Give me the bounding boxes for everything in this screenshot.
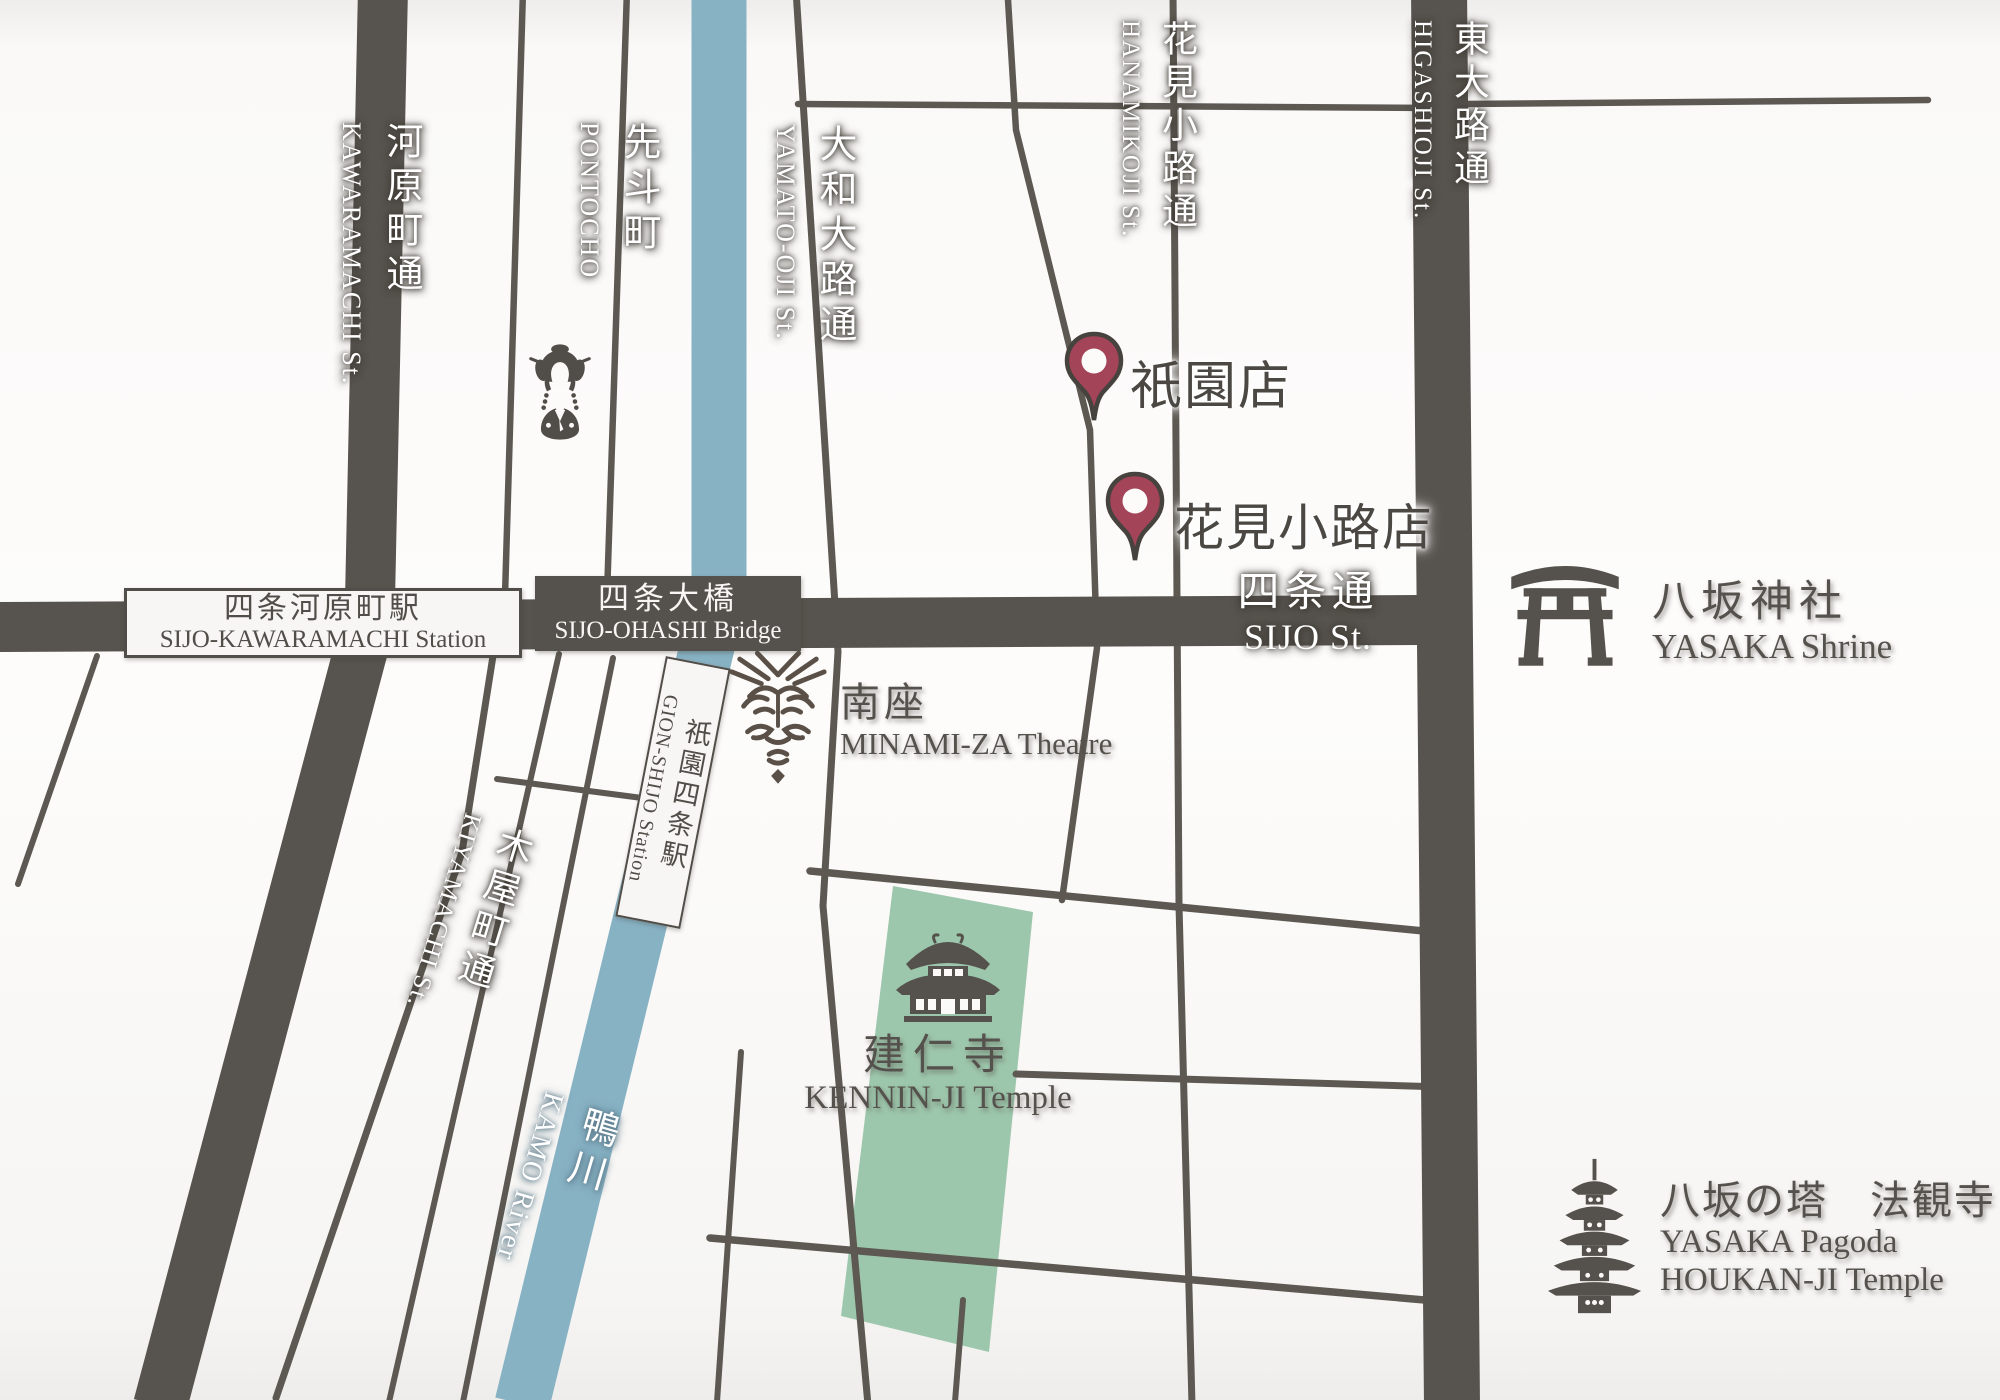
- station-box-sijo-kawaramachi: 四条河原町駅 SIJO-KAWARAMACHI Station: [124, 588, 522, 658]
- temple-icon: [888, 932, 1008, 1024]
- landmark-en: MINAMI-ZA Theatre: [840, 726, 1112, 762]
- map-pin-icon-gion[interactable]: [1061, 330, 1127, 426]
- pin-body[interactable]: [1067, 334, 1121, 420]
- street-label-jp: 東大路通: [1443, 20, 1495, 220]
- street-label-pontocho: 先斗町 PONTOCHO: [574, 122, 666, 279]
- street-label-hanamikoji: 花見小路通 HANAMIKOJI St.: [1116, 20, 1203, 238]
- pin-label-hanamikoji[interactable]: 花見小路店: [1174, 488, 1434, 560]
- street-label-sijo: 四条通 SIJO St.: [1192, 570, 1424, 657]
- road-gion-north-east: [1462, 100, 1928, 104]
- landmark-jp: 建仁寺: [792, 1032, 1084, 1080]
- landmark-en: YASAKA Shrine: [1652, 627, 1892, 667]
- street-label-jp: 大和大路通: [807, 124, 862, 349]
- landmark-label-kenninji: 建仁寺 KENNIN-JI Temple: [792, 1032, 1084, 1118]
- map-pin-icon-hanamikoji[interactable]: [1102, 470, 1168, 566]
- street-label-en: YAMATO-OJI St.: [770, 124, 800, 349]
- station-name-jp: 四条河原町駅: [224, 592, 422, 626]
- landmark-en: KENNIN-JI Temple: [792, 1080, 1084, 1118]
- landmark-label-yasaka-shrine: 八坂神社 YASAKA Shrine: [1652, 578, 1892, 668]
- kabuki-mask-icon: [724, 648, 832, 788]
- street-label-yamatooji: 大和大路通 YAMATO-OJI St.: [770, 124, 862, 349]
- street-label-jp: 四条通: [1192, 570, 1424, 617]
- street-label-jp: 先斗町: [611, 122, 666, 279]
- street-label-jp: 花見小路通: [1151, 20, 1203, 238]
- street-label-jp: 河原町通: [373, 122, 427, 385]
- landmark-jp: 南座: [840, 680, 1112, 726]
- pin-center: [1123, 489, 1148, 514]
- landmark-en2: HOUKAN-JI Temple: [1660, 1262, 1996, 1300]
- landmark-jp: 八坂神社: [1652, 578, 1892, 627]
- street-label-higashioji: 東大路通 HIGASHIOJI St.: [1408, 20, 1495, 220]
- bridge-box-sijo-ohashi: 四条大橋 SIJO-OHASHI Bridge: [535, 576, 801, 651]
- street-label-en: SIJO St.: [1192, 617, 1424, 657]
- kyoto-gion-area-map: 河原町通 KAWARAMACHI St. 先斗町 PONTOCHO 大和大路通 …: [0, 0, 2000, 1400]
- landmark-label-minamiza: 南座 MINAMI-ZA Theatre: [840, 680, 1112, 762]
- pin-body[interactable]: [1108, 474, 1162, 560]
- street-label-kawaramachi: 河原町通 KAWARAMACHI St.: [336, 122, 427, 385]
- pin-label-gion[interactable]: 祇園店: [1130, 344, 1292, 419]
- bridge-name-en: SIJO-OHASHI Bridge: [554, 617, 781, 645]
- station-name-en: SIJO-KAWARAMACHI Station: [160, 626, 486, 654]
- landmark-jp: 八坂の塔 法観寺: [1660, 1178, 1996, 1224]
- bridge-name-jp: 四条大橋: [598, 582, 738, 617]
- street-label-en: PONTOCHO: [574, 122, 604, 279]
- torii-icon: [1503, 550, 1627, 674]
- street-label-en: KAWARAMACHI St.: [336, 122, 366, 385]
- landmark-en: YASAKA Pagoda: [1660, 1224, 1996, 1262]
- street-label-en: HANAMIKOJI St.: [1116, 20, 1144, 238]
- street-label-en: HIGASHIOJI St.: [1408, 20, 1436, 220]
- landmark-label-yasaka-pagoda: 八坂の塔 法観寺 YASAKA Pagoda HOUKAN-JI Temple: [1660, 1178, 1996, 1300]
- pagoda-icon: [1546, 1155, 1643, 1319]
- pin-center: [1082, 349, 1107, 374]
- maiko-icon: [526, 340, 594, 444]
